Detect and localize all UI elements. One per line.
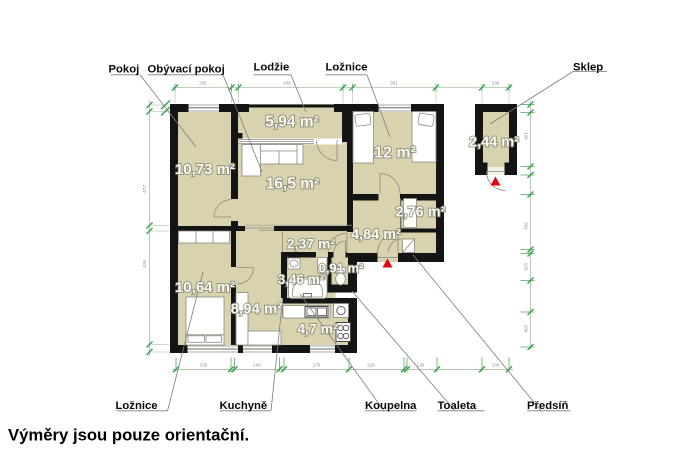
svg-text:10,73 m²: 10,73 m² bbox=[175, 161, 235, 178]
svg-text:4,7 m²: 4,7 m² bbox=[297, 321, 338, 337]
svg-text:436: 436 bbox=[283, 81, 291, 86]
svg-text:Pokoj: Pokoj bbox=[109, 63, 140, 75]
svg-text:216: 216 bbox=[367, 363, 375, 368]
svg-text:3,46 m²: 3,46 m² bbox=[278, 272, 325, 287]
svg-text:Kuchyně: Kuchyně bbox=[220, 400, 268, 412]
svg-text:100: 100 bbox=[253, 363, 261, 368]
svg-text:12 m²: 12 m² bbox=[374, 145, 416, 162]
svg-text:198: 198 bbox=[524, 132, 529, 140]
svg-text:426: 426 bbox=[142, 260, 147, 268]
svg-text:2,76 m²: 2,76 m² bbox=[396, 205, 446, 221]
svg-text:100: 100 bbox=[492, 363, 500, 368]
svg-text:Sklep: Sklep bbox=[573, 62, 603, 74]
svg-text:0,91 m²: 0,91 m² bbox=[319, 261, 364, 276]
svg-text:16,5 m²: 16,5 m² bbox=[266, 176, 319, 193]
svg-text:2,44 m²: 2,44 m² bbox=[469, 135, 519, 151]
svg-text:150: 150 bbox=[524, 325, 529, 333]
svg-text:100: 100 bbox=[492, 81, 500, 86]
svg-text:Lodžie: Lodžie bbox=[254, 62, 290, 74]
svg-text:139: 139 bbox=[417, 363, 425, 368]
svg-text:202: 202 bbox=[524, 222, 529, 230]
svg-text:Ložnice: Ložnice bbox=[116, 400, 158, 412]
svg-text:335: 335 bbox=[199, 81, 207, 86]
svg-text:Předsíň: Předsíň bbox=[527, 400, 569, 412]
svg-text:8,94 m²: 8,94 m² bbox=[231, 301, 283, 318]
svg-text:270: 270 bbox=[313, 363, 321, 368]
svg-text:Obývací pokoj: Obývací pokoj bbox=[148, 63, 225, 75]
svg-text:4,84 m²: 4,84 m² bbox=[351, 227, 401, 243]
svg-text:477: 477 bbox=[142, 185, 147, 193]
svg-text:Toaleta: Toaleta bbox=[438, 400, 477, 412]
svg-text:Koupelna: Koupelna bbox=[365, 400, 417, 412]
svg-text:2,37 m²: 2,37 m² bbox=[287, 236, 336, 252]
svg-text:335: 335 bbox=[200, 363, 208, 368]
svg-text:391: 391 bbox=[390, 81, 398, 86]
svg-text:Výměry jsou pouze orientační.: Výměry jsou pouze orientační. bbox=[8, 426, 249, 445]
svg-text:Ložnice: Ložnice bbox=[326, 62, 368, 74]
svg-text:133: 133 bbox=[524, 263, 529, 271]
svg-text:10,64 m²: 10,64 m² bbox=[175, 279, 235, 296]
svg-text:5,94 m²: 5,94 m² bbox=[265, 114, 318, 131]
